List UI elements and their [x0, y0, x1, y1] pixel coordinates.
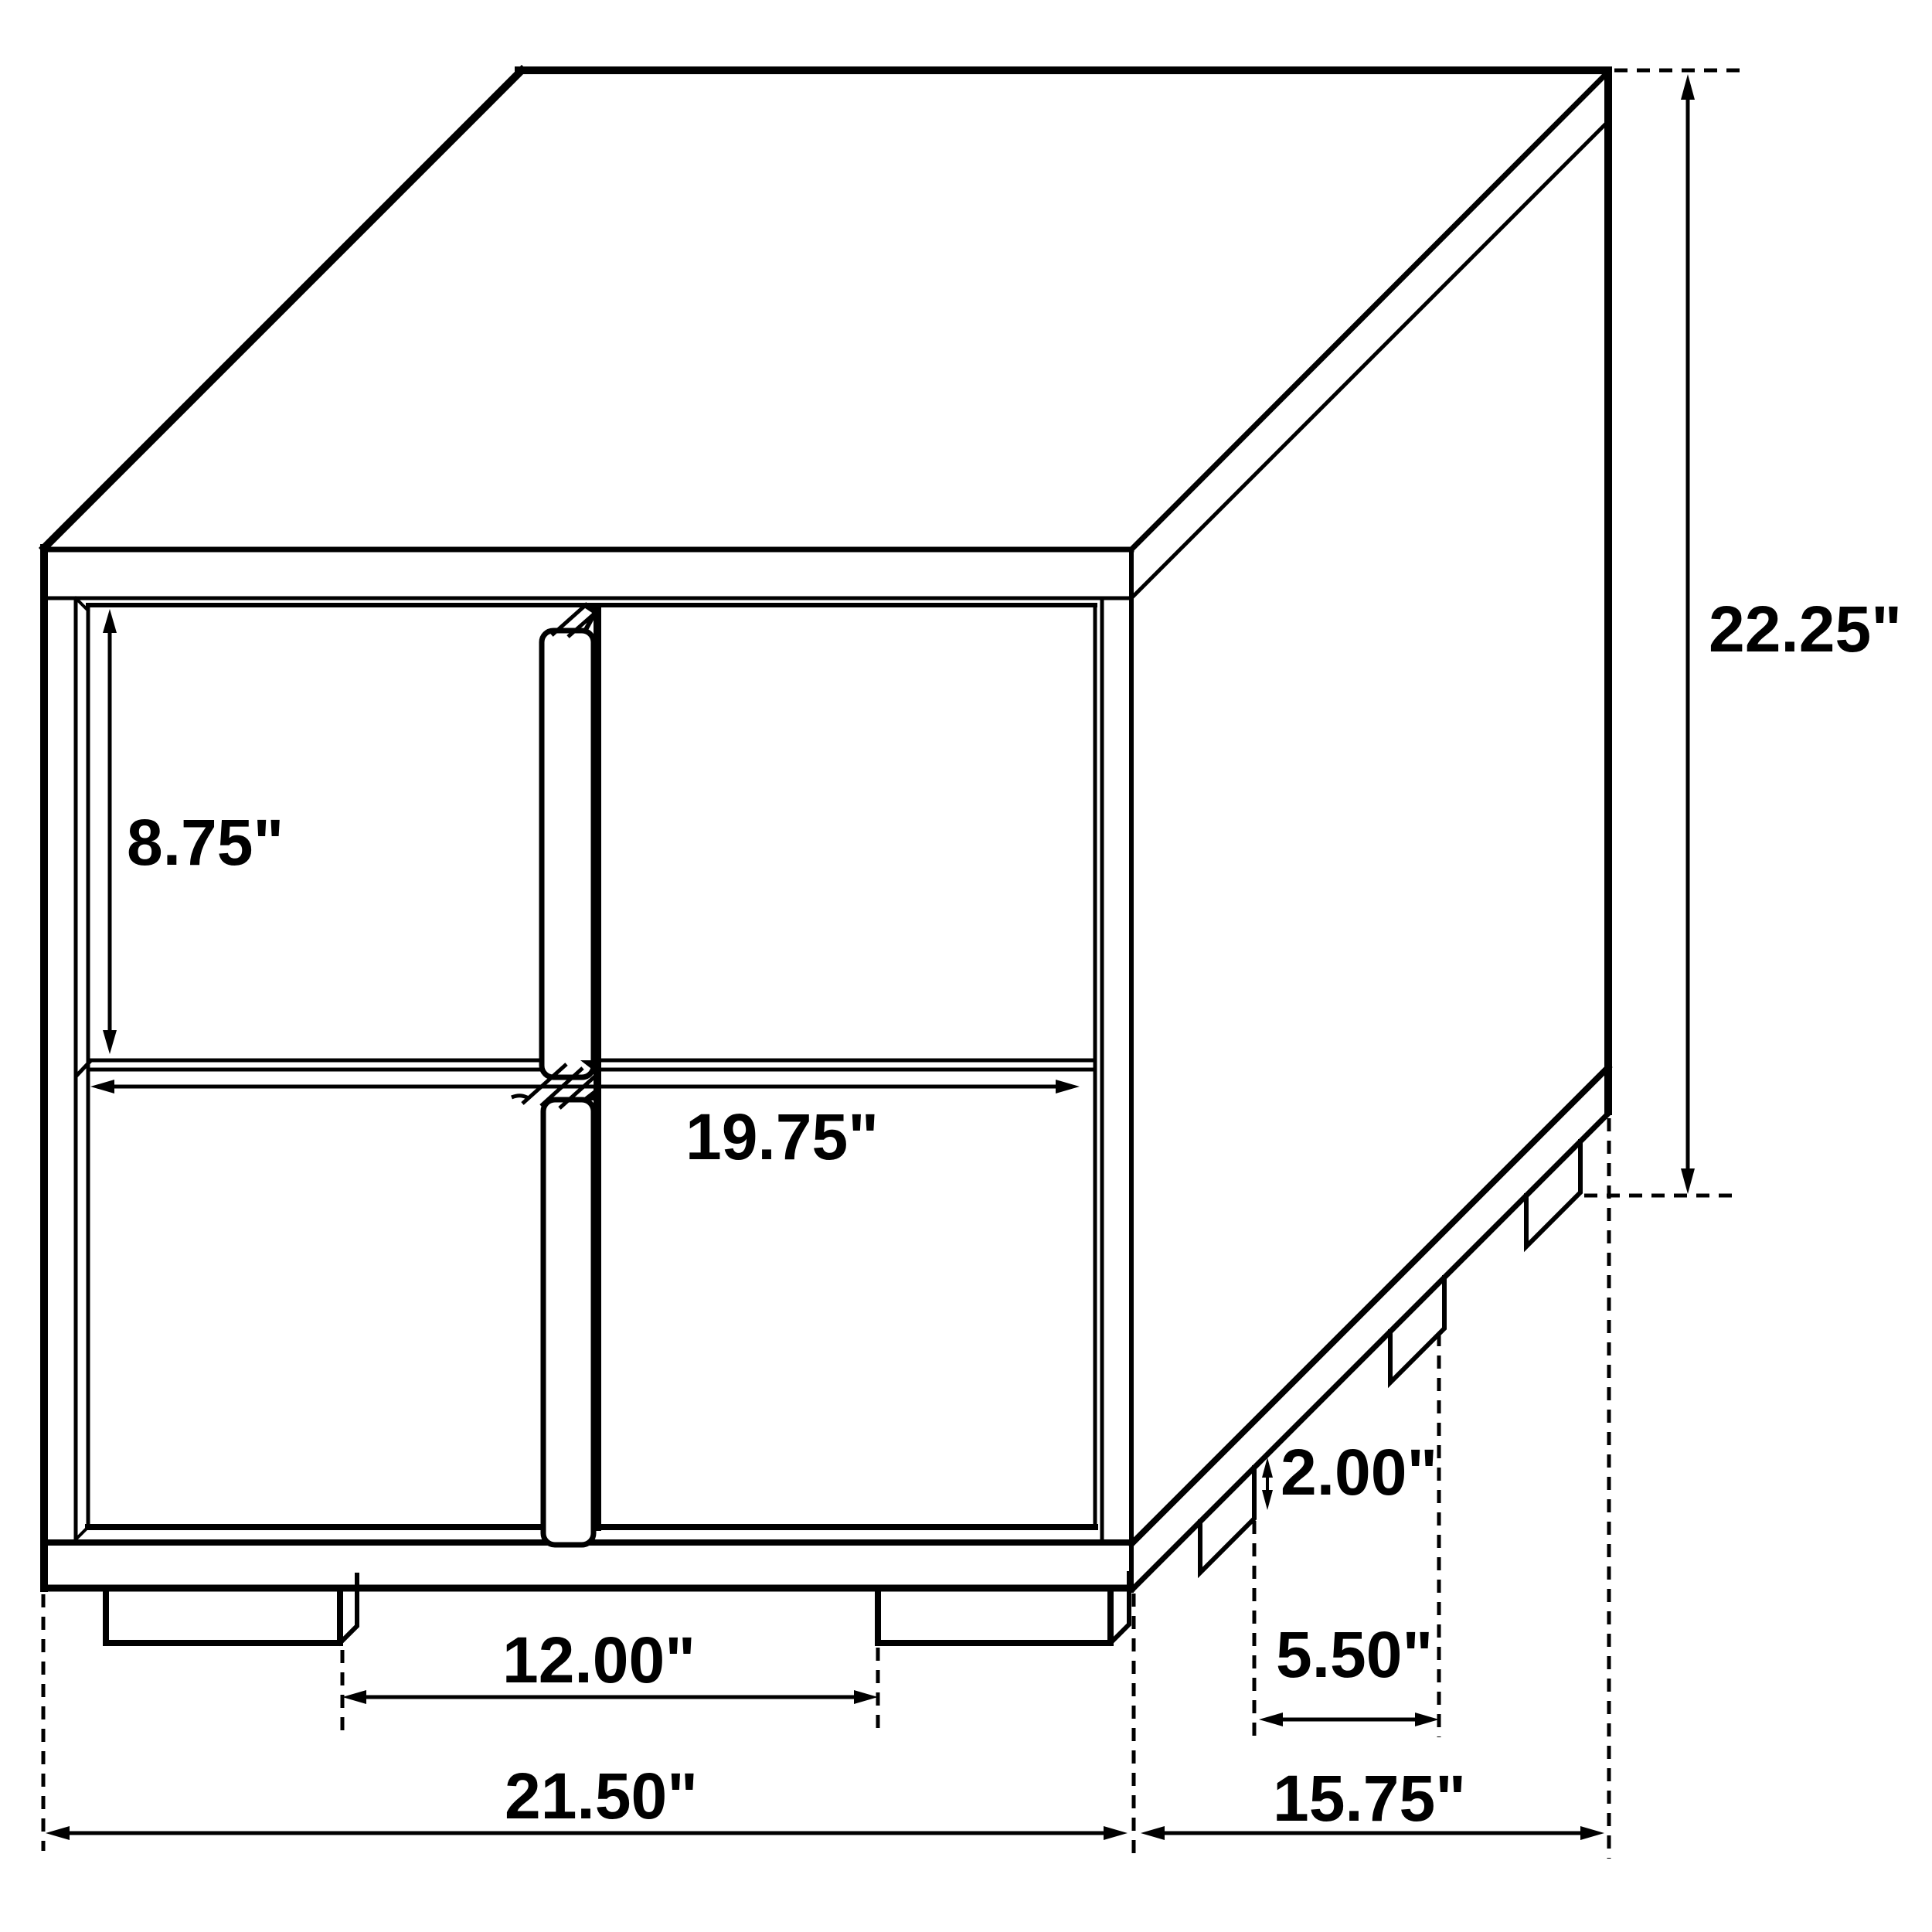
svg-text:22.25": 22.25"	[1709, 593, 1902, 665]
svg-text:21.50": 21.50"	[505, 1760, 698, 1832]
svg-text:5.50": 5.50"	[1276, 1618, 1433, 1691]
svg-text:2.00": 2.00"	[1281, 1436, 1437, 1509]
svg-text:19.75": 19.75"	[685, 1100, 879, 1173]
svg-text:12.00": 12.00"	[502, 1624, 696, 1696]
svg-text:15.75": 15.75"	[1273, 1762, 1466, 1835]
svg-text:8.75": 8.75"	[127, 806, 284, 879]
